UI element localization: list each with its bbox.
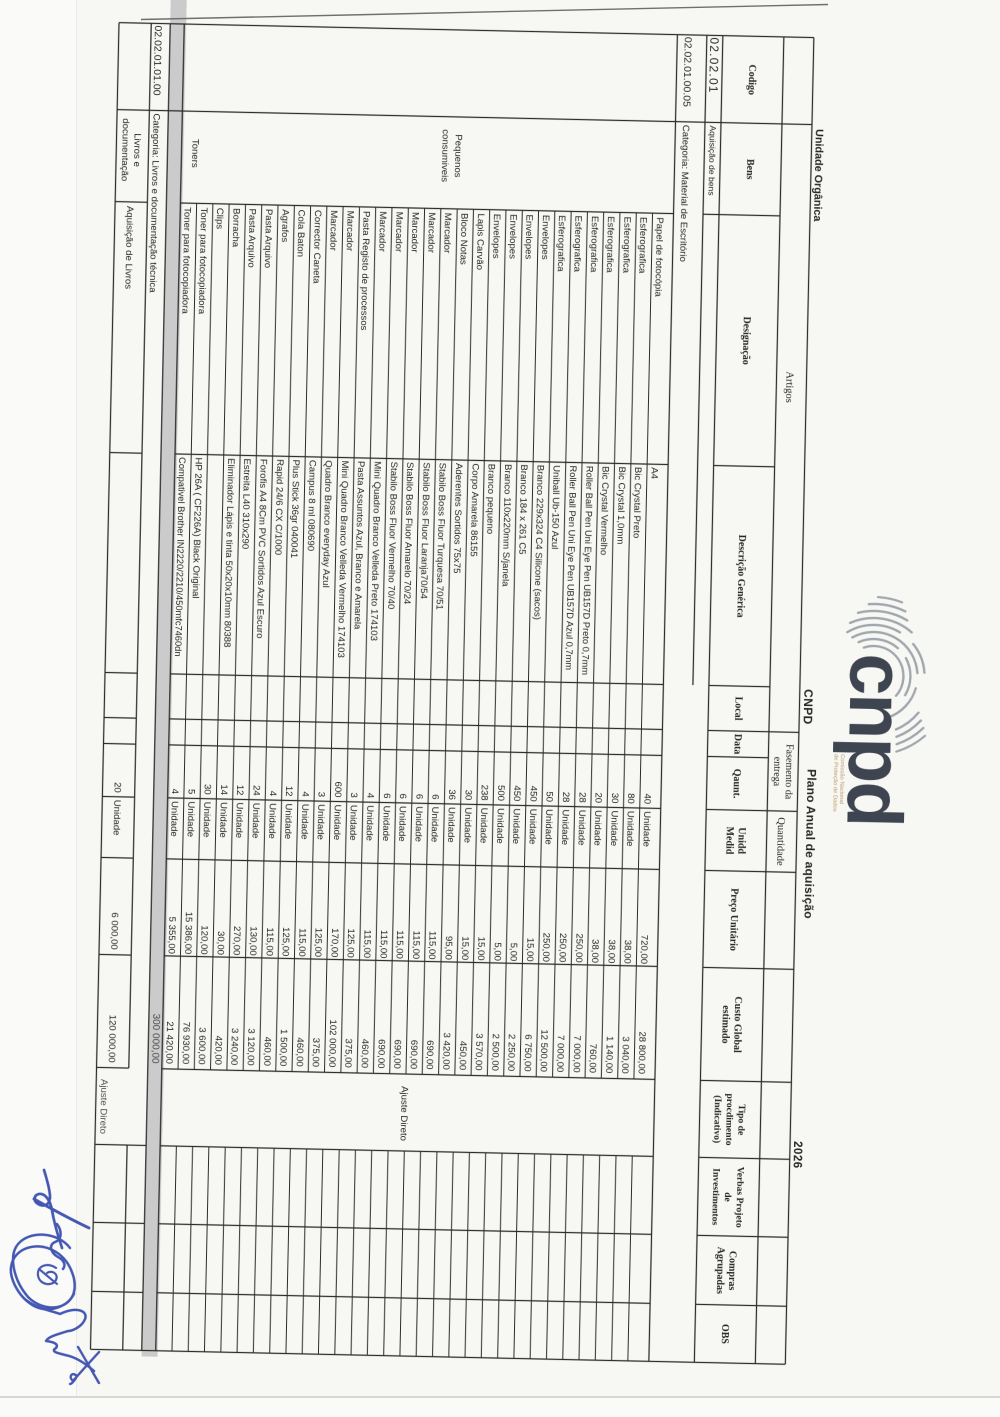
svg-text:5,00: 5,00 [491, 942, 502, 961]
svg-text:5 355,00: 5 355,00 [166, 916, 178, 954]
svg-text:Unidade: Unidade [510, 808, 522, 844]
svg-text:3 600,00: 3 600,00 [196, 1027, 208, 1065]
svg-text:7 000,00: 7 000,00 [554, 1035, 566, 1073]
svg-text:4: 4 [299, 791, 310, 797]
svg-text:Envelopes: Envelopes [490, 214, 502, 259]
svg-text:50: 50 [544, 791, 555, 802]
svg-text:24: 24 [250, 785, 261, 797]
svg-text:170,00: 170,00 [328, 928, 340, 958]
svg-text:30,00: 30,00 [214, 931, 226, 955]
svg-text:30: 30 [609, 793, 620, 804]
svg-text:250,00: 250,00 [573, 933, 585, 963]
svg-text:Plus Stick 36gr 040041: Plus Stick 36gr 040041 [288, 459, 301, 558]
svg-text:690,00: 690,00 [375, 1039, 387, 1069]
svg-text:720,00: 720,00 [638, 935, 650, 965]
svg-text:15,00: 15,00 [475, 936, 487, 960]
svg-text:120 000,00: 120 000,00 [106, 1015, 118, 1063]
svg-text:Roller Ball Pen Uni Eye Pen UB: Roller Ball Pen Uni Eye Pen UB157D Preto… [580, 466, 595, 676]
svg-text:38,00: 38,00 [605, 939, 617, 963]
svg-text:102 000,00: 102 000,00 [326, 1019, 338, 1067]
svg-text:Unidade: Unidade [429, 806, 441, 842]
svg-text:115,00: 115,00 [377, 930, 389, 959]
svg-text:Quantidade: Quantidade [774, 817, 786, 866]
svg-text:Medid: Medid [723, 826, 735, 854]
svg-text:Unidade: Unidade [412, 806, 424, 842]
svg-text:Descrição Genérica: Descrição Genérica [734, 534, 747, 617]
svg-text:76 930,00: 76 930,00 [180, 1021, 192, 1064]
svg-text:15,00: 15,00 [524, 938, 536, 962]
svg-text:Pasta Arquivo: Pasta Arquivo [262, 209, 274, 268]
svg-text:Unidade: Unidade [575, 810, 587, 846]
svg-text:Esferografica: Esferografica [555, 215, 567, 272]
svg-text:Unidade: Unidade [347, 805, 359, 841]
svg-text:3: 3 [316, 792, 327, 798]
svg-text:Esferografica: Esferografica [636, 217, 648, 274]
svg-text:270,00: 270,00 [231, 926, 243, 956]
svg-text:documentação: documentação [119, 118, 131, 181]
svg-text:Designação: Designação [740, 316, 752, 365]
svg-text:6: 6 [430, 794, 441, 800]
svg-text:500: 500 [495, 785, 506, 801]
svg-text:Toner para fotocopiadora: Toner para fotocopiadora [179, 207, 192, 315]
svg-text:Envelopes: Envelopes [523, 214, 535, 259]
svg-text:3 240,00: 3 240,00 [228, 1028, 240, 1066]
svg-text:125,00: 125,00 [345, 928, 357, 958]
svg-text:690,00: 690,00 [407, 1040, 419, 1070]
svg-text:Investimentos: Investimentos [709, 1168, 721, 1226]
svg-text:115,00: 115,00 [296, 928, 308, 957]
svg-text:3 040,00: 3 040,00 [619, 1036, 631, 1074]
svg-text:Unidd: Unidd [735, 827, 747, 854]
svg-text:Esferografica: Esferografica [588, 216, 600, 273]
svg-text:Unidade: Unidade [608, 810, 620, 846]
svg-text:Unidade: Unidade [282, 803, 294, 839]
svg-text:6 000,00: 6 000,00 [108, 912, 120, 950]
svg-text:Esferografica: Esferografica [604, 216, 616, 273]
svg-text:3 120,00: 3 120,00 [245, 1028, 257, 1066]
svg-text:A4: A4 [648, 467, 659, 480]
svg-text:600: 600 [332, 781, 343, 797]
svg-text:Tipo de: Tipo de [735, 1104, 747, 1136]
svg-text:95,00: 95,00 [442, 936, 454, 960]
svg-text:12: 12 [283, 786, 294, 797]
svg-text:130,00: 130,00 [247, 926, 259, 956]
svg-text:Aderentes Sortidos 75x75: Aderentes Sortidos 75x75 [451, 463, 464, 574]
svg-text:28 800,00: 28 800,00 [635, 1031, 647, 1074]
svg-text:procdimento: procdimento [723, 1093, 735, 1145]
svg-text:Envelopes: Envelopes [506, 214, 518, 259]
svg-text:Unidade: Unidade [477, 808, 489, 844]
svg-text:Pequenos: Pequenos [452, 134, 464, 178]
svg-text:460,00: 460,00 [294, 1037, 306, 1067]
svg-text:Estreita L40 310x290: Estreita L40 310x290 [239, 458, 252, 549]
svg-text:Branco 110x220mm S/janela: Branco 110x220mm S/janela [499, 464, 513, 587]
svg-text:Unidade: Unidade [266, 803, 278, 839]
svg-text:Marcador: Marcador [409, 212, 421, 254]
svg-text:30: 30 [202, 784, 213, 795]
svg-text:Stabilo Boss Fluor Turquesa 70: Stabilo Boss Fluor Turquesa 70/51 [434, 463, 448, 610]
svg-text:238: 238 [478, 785, 489, 801]
svg-text:Preço Unitário: Preço Unitário [727, 888, 739, 951]
svg-text:Bloco Notas: Bloco Notas [457, 213, 469, 265]
svg-text:14: 14 [218, 784, 229, 796]
svg-text:Clips: Clips [214, 208, 225, 230]
svg-text:4: 4 [364, 793, 375, 799]
svg-text:de Proteção de Dados: de Proteção de Dados [831, 754, 838, 812]
svg-text:Bens: Bens [744, 159, 755, 180]
svg-text:Envelopes: Envelopes [539, 215, 551, 260]
svg-text:de: de [722, 1192, 733, 1203]
svg-text:115,00: 115,00 [361, 929, 373, 958]
svg-text:Campus 8 ml 080690: Campus 8 ml 080690 [305, 460, 318, 551]
svg-text:375,00: 375,00 [310, 1038, 322, 1068]
svg-text:Ajuste Direto: Ajuste Direto [97, 1079, 109, 1134]
svg-text:2026: 2026 [790, 1141, 803, 1169]
svg-text:Bic Crystal Vermelho: Bic Crystal Vermelho [598, 466, 611, 555]
svg-text:Stabilo Boss Fluor Vermelho 70: Stabilo Boss Fluor Vermelho 70/40 [385, 462, 399, 610]
svg-text:Livros e: Livros e [131, 133, 143, 167]
svg-text:250,00: 250,00 [556, 933, 568, 963]
svg-text:02.02.01: 02.02.01 [706, 37, 721, 94]
svg-text:Aquisição de Livros: Aquisição de Livros [122, 206, 135, 290]
svg-text:Ajuste Direto: Ajuste Direto [397, 1086, 409, 1141]
svg-text:125,00: 125,00 [280, 927, 292, 957]
svg-text:Pasta Arquivo: Pasta Arquivo [245, 208, 257, 267]
svg-text:Unidade: Unidade [201, 802, 213, 838]
svg-text:Marcador: Marcador [392, 212, 404, 254]
svg-text:02.02.01.00.05: 02.02.01.00.05 [680, 37, 694, 107]
svg-text:Lapis Carvão: Lapis Carvão [474, 213, 486, 270]
svg-text:115,00: 115,00 [410, 930, 422, 959]
svg-text:Marcador: Marcador [327, 210, 339, 252]
svg-text:Corpo Amarela 86155: Corpo Amarela 86155 [467, 463, 480, 557]
svg-text:Unidade: Unidade [331, 804, 343, 840]
svg-text:entrega: entrega [771, 757, 783, 787]
svg-text:Marcador: Marcador [441, 213, 453, 255]
svg-text:690,00: 690,00 [424, 1040, 436, 1070]
svg-text:Unidade: Unidade [315, 804, 327, 840]
svg-text:38,00: 38,00 [589, 939, 601, 963]
svg-text:Marcador: Marcador [376, 211, 388, 253]
svg-text:Unidade: Unidade [168, 801, 180, 837]
svg-text:5,00: 5,00 [508, 943, 519, 962]
svg-text:Toner para fotocopiadora: Toner para fotocopiadora [196, 207, 209, 315]
svg-text:115,00: 115,00 [263, 927, 275, 956]
svg-text:460,00: 460,00 [261, 1037, 273, 1067]
svg-text:Uniball Ub-150 Azul: Uniball Ub-150 Azul [549, 465, 562, 549]
svg-text:20: 20 [111, 782, 122, 793]
svg-text:Quadro Branco everyday Azul: Quadro Branco everyday Azul [320, 460, 334, 588]
svg-text:Bic Crystal Preto: Bic Crystal Preto [631, 467, 644, 539]
svg-text:Comissão Nacional: Comissão Nacional [838, 754, 845, 804]
svg-text:12 500,00: 12 500,00 [538, 1029, 550, 1072]
svg-text:Qaunt.: Qaunt. [730, 769, 742, 799]
svg-text:cnpd: cnpd [830, 653, 922, 827]
svg-text:36: 36 [446, 789, 457, 800]
svg-text:Pasta Assuntos Azul, Branco e: Pasta Assuntos Azul, Branco e Amarela [352, 461, 367, 630]
svg-text:Borracha: Borracha [230, 208, 242, 248]
svg-text:Unidade: Unidade [445, 807, 457, 843]
svg-text:Stabilo Boss Fluor Amarelo 70/: Stabilo Boss Fluor Amarelo 70/24 [401, 462, 415, 605]
svg-text:Categoria: Material de Escritó: Categoria: Material de Escritório [677, 125, 691, 262]
svg-text:Marcador: Marcador [344, 211, 356, 253]
svg-text:38,00: 38,00 [621, 940, 633, 964]
svg-text:CNPD: CNPD [801, 689, 816, 725]
svg-text:6: 6 [413, 794, 424, 800]
svg-text:125,00: 125,00 [312, 928, 324, 958]
svg-text:(Indicativo): (Indicativo) [711, 1095, 723, 1143]
svg-text:4: 4 [169, 789, 180, 795]
svg-text:Unidade: Unidade [396, 806, 408, 842]
svg-text:Unidade: Unidade [249, 803, 261, 839]
svg-text:Agrupadas: Agrupadas [714, 1247, 726, 1295]
svg-text:375,00: 375,00 [342, 1038, 354, 1068]
svg-text:OBS: OBS [719, 1324, 730, 1345]
svg-text:40: 40 [641, 793, 652, 804]
svg-text:Data: Data [731, 734, 742, 755]
svg-text:28: 28 [560, 792, 571, 803]
svg-text:Local: Local [732, 697, 744, 721]
svg-text:6: 6 [397, 793, 408, 799]
svg-text:15,00: 15,00 [459, 936, 471, 960]
svg-text:Pasta Registo de processos: Pasta Registo de processos [358, 211, 372, 331]
svg-text:21 420,00: 21 420,00 [163, 1021, 175, 1064]
svg-text:Plano Anual de aquisição: Plano Anual de aquisição [801, 769, 818, 919]
svg-text:Unidade: Unidade [591, 810, 603, 846]
svg-text:690,00: 690,00 [391, 1039, 403, 1069]
svg-text:Unidade: Unidade [526, 809, 538, 845]
svg-text:3: 3 [348, 792, 359, 798]
svg-text:Esferografica: Esferografica [571, 215, 583, 272]
svg-text:Codigo: Codigo [746, 64, 758, 95]
svg-text:2 250,00: 2 250,00 [505, 1034, 517, 1072]
svg-text:12: 12 [234, 785, 245, 796]
svg-text:02.02.01.01.00: 02.02.01.01.00 [151, 25, 165, 95]
svg-text:1 500,00: 1 500,00 [277, 1029, 289, 1067]
svg-text:estimado: estimado [719, 1005, 731, 1044]
svg-text:450: 450 [511, 785, 522, 801]
svg-text:Unidade: Unidade [494, 808, 506, 844]
svg-text:80: 80 [625, 793, 636, 804]
svg-text:Cola Baton: Cola Baton [295, 209, 307, 257]
svg-text:115,00: 115,00 [426, 931, 438, 960]
svg-text:20: 20 [592, 792, 603, 803]
svg-text:Papel de fotocópia: Papel de fotocópia [652, 217, 665, 297]
svg-text:Unidade: Unidade [298, 804, 310, 840]
svg-text:Agrafos: Agrafos [279, 209, 291, 242]
svg-text:1 140,00: 1 140,00 [603, 1036, 615, 1074]
svg-text:15 386,00: 15 386,00 [182, 912, 194, 955]
svg-text:Compras: Compras [726, 1251, 738, 1291]
svg-text:115,00: 115,00 [394, 930, 406, 959]
svg-text:450: 450 [527, 786, 538, 802]
svg-text:Esferografica: Esferografica [620, 216, 632, 273]
svg-text:Marcador: Marcador [425, 212, 437, 254]
svg-text:6 750,00: 6 750,00 [521, 1034, 533, 1072]
svg-text:120,00: 120,00 [198, 925, 210, 955]
svg-text:Aquisição de bens: Aquisição de bens [706, 125, 718, 195]
svg-text:Verbas Projeto: Verbas Projeto [733, 1167, 745, 1228]
svg-text:Toners: Toners [189, 139, 201, 168]
svg-text:250,00: 250,00 [540, 933, 552, 963]
svg-text:HP 26A ( CF226A) Black Origina: HP 26A ( CF226A) Black Original [190, 457, 204, 598]
svg-text:Bic Crystal 1,0mm: Bic Crystal 1,0mm [614, 466, 627, 544]
svg-text:Unidade: Unidade [184, 801, 196, 837]
svg-text:Unidade: Unidade [111, 800, 123, 836]
svg-text:Artigos: Artigos [783, 371, 795, 403]
svg-text:Unidade: Unidade [640, 811, 652, 847]
svg-text:Unidade: Unidade [363, 805, 375, 841]
svg-text:Unidade: Unidade [624, 811, 636, 847]
svg-text:2 500,00: 2 500,00 [489, 1033, 501, 1071]
svg-text:3 570,00: 3 570,00 [473, 1033, 485, 1071]
svg-text:450,00: 450,00 [456, 1041, 468, 1071]
svg-text:Corrector Caneta: Corrector Caneta [310, 210, 323, 284]
svg-text:28: 28 [576, 792, 587, 803]
svg-text:Branco 229x324 C4 Silicone (sa: Branco 229x324 C4 Silicone (sacos) [531, 465, 545, 620]
svg-text:Rapid 24/6 CX C/1000: Rapid 24/6 CX C/1000 [272, 459, 285, 555]
svg-text:3 420,00: 3 420,00 [440, 1032, 452, 1070]
svg-text:Branco 184 x 261 C5: Branco 184 x 261 C5 [516, 464, 529, 554]
svg-text:460,00: 460,00 [359, 1039, 371, 1069]
svg-text:7 000,00: 7 000,00 [570, 1035, 582, 1073]
svg-text:6: 6 [381, 793, 392, 799]
svg-text:Roller Ball Pen Uni Eye Pen UB: Roller Ball Pen Uni Eye Pen UB157D Azul … [564, 465, 578, 670]
svg-text:30: 30 [462, 790, 473, 801]
svg-text:4: 4 [267, 791, 278, 797]
svg-text:Unidade: Unidade [233, 802, 245, 838]
svg-text:Custo Global: Custo Global [731, 996, 743, 1053]
svg-text:consumiveis: consumiveis [439, 129, 451, 182]
svg-text:Unidade: Unidade [559, 809, 571, 845]
svg-text:Unidade: Unidade [380, 805, 392, 841]
svg-text:760,00: 760,00 [587, 1044, 599, 1074]
svg-text:Stabilo Boss Fluor Laranja70/5: Stabilo Boss Fluor Laranja70/54 [418, 462, 432, 599]
svg-text:Unidade: Unidade [461, 807, 473, 843]
svg-text:420,00: 420,00 [212, 1036, 224, 1066]
svg-text:Unidade Orgânica: Unidade Orgânica [811, 129, 825, 223]
svg-text:300 000,00: 300 000,00 [149, 1013, 161, 1064]
svg-text:Branco pequeno: Branco pequeno [484, 464, 497, 535]
svg-text:Unidade: Unidade [543, 809, 555, 845]
svg-text:5: 5 [185, 789, 196, 795]
svg-text:Fasemento da: Fasemento da [782, 744, 794, 800]
svg-text:Unidade: Unidade [217, 802, 229, 838]
